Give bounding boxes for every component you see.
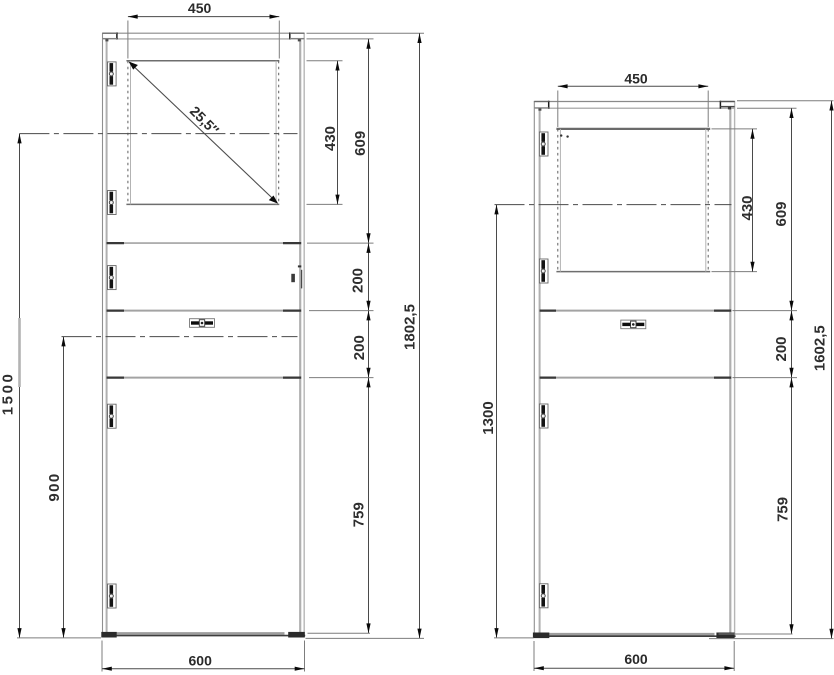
- svg-text:1300: 1300: [480, 401, 497, 434]
- svg-text:600: 600: [189, 652, 213, 668]
- svg-text:430: 430: [739, 195, 756, 220]
- svg-text:200: 200: [773, 336, 790, 361]
- svg-text:450: 450: [188, 0, 212, 16]
- svg-text:600: 600: [624, 651, 648, 667]
- svg-text:200: 200: [350, 268, 367, 293]
- svg-text:609: 609: [352, 131, 369, 156]
- svg-text:900: 900: [46, 472, 63, 501]
- svg-text:450: 450: [624, 70, 648, 86]
- svg-text:430: 430: [322, 126, 339, 151]
- svg-text:609: 609: [773, 201, 790, 226]
- svg-text:759: 759: [774, 497, 791, 522]
- svg-text:1500: 1500: [0, 372, 16, 416]
- svg-text:200: 200: [351, 335, 368, 360]
- svg-text:1802,5: 1802,5: [401, 304, 418, 350]
- svg-text:1602,5: 1602,5: [811, 325, 828, 371]
- svg-text:759: 759: [351, 502, 368, 527]
